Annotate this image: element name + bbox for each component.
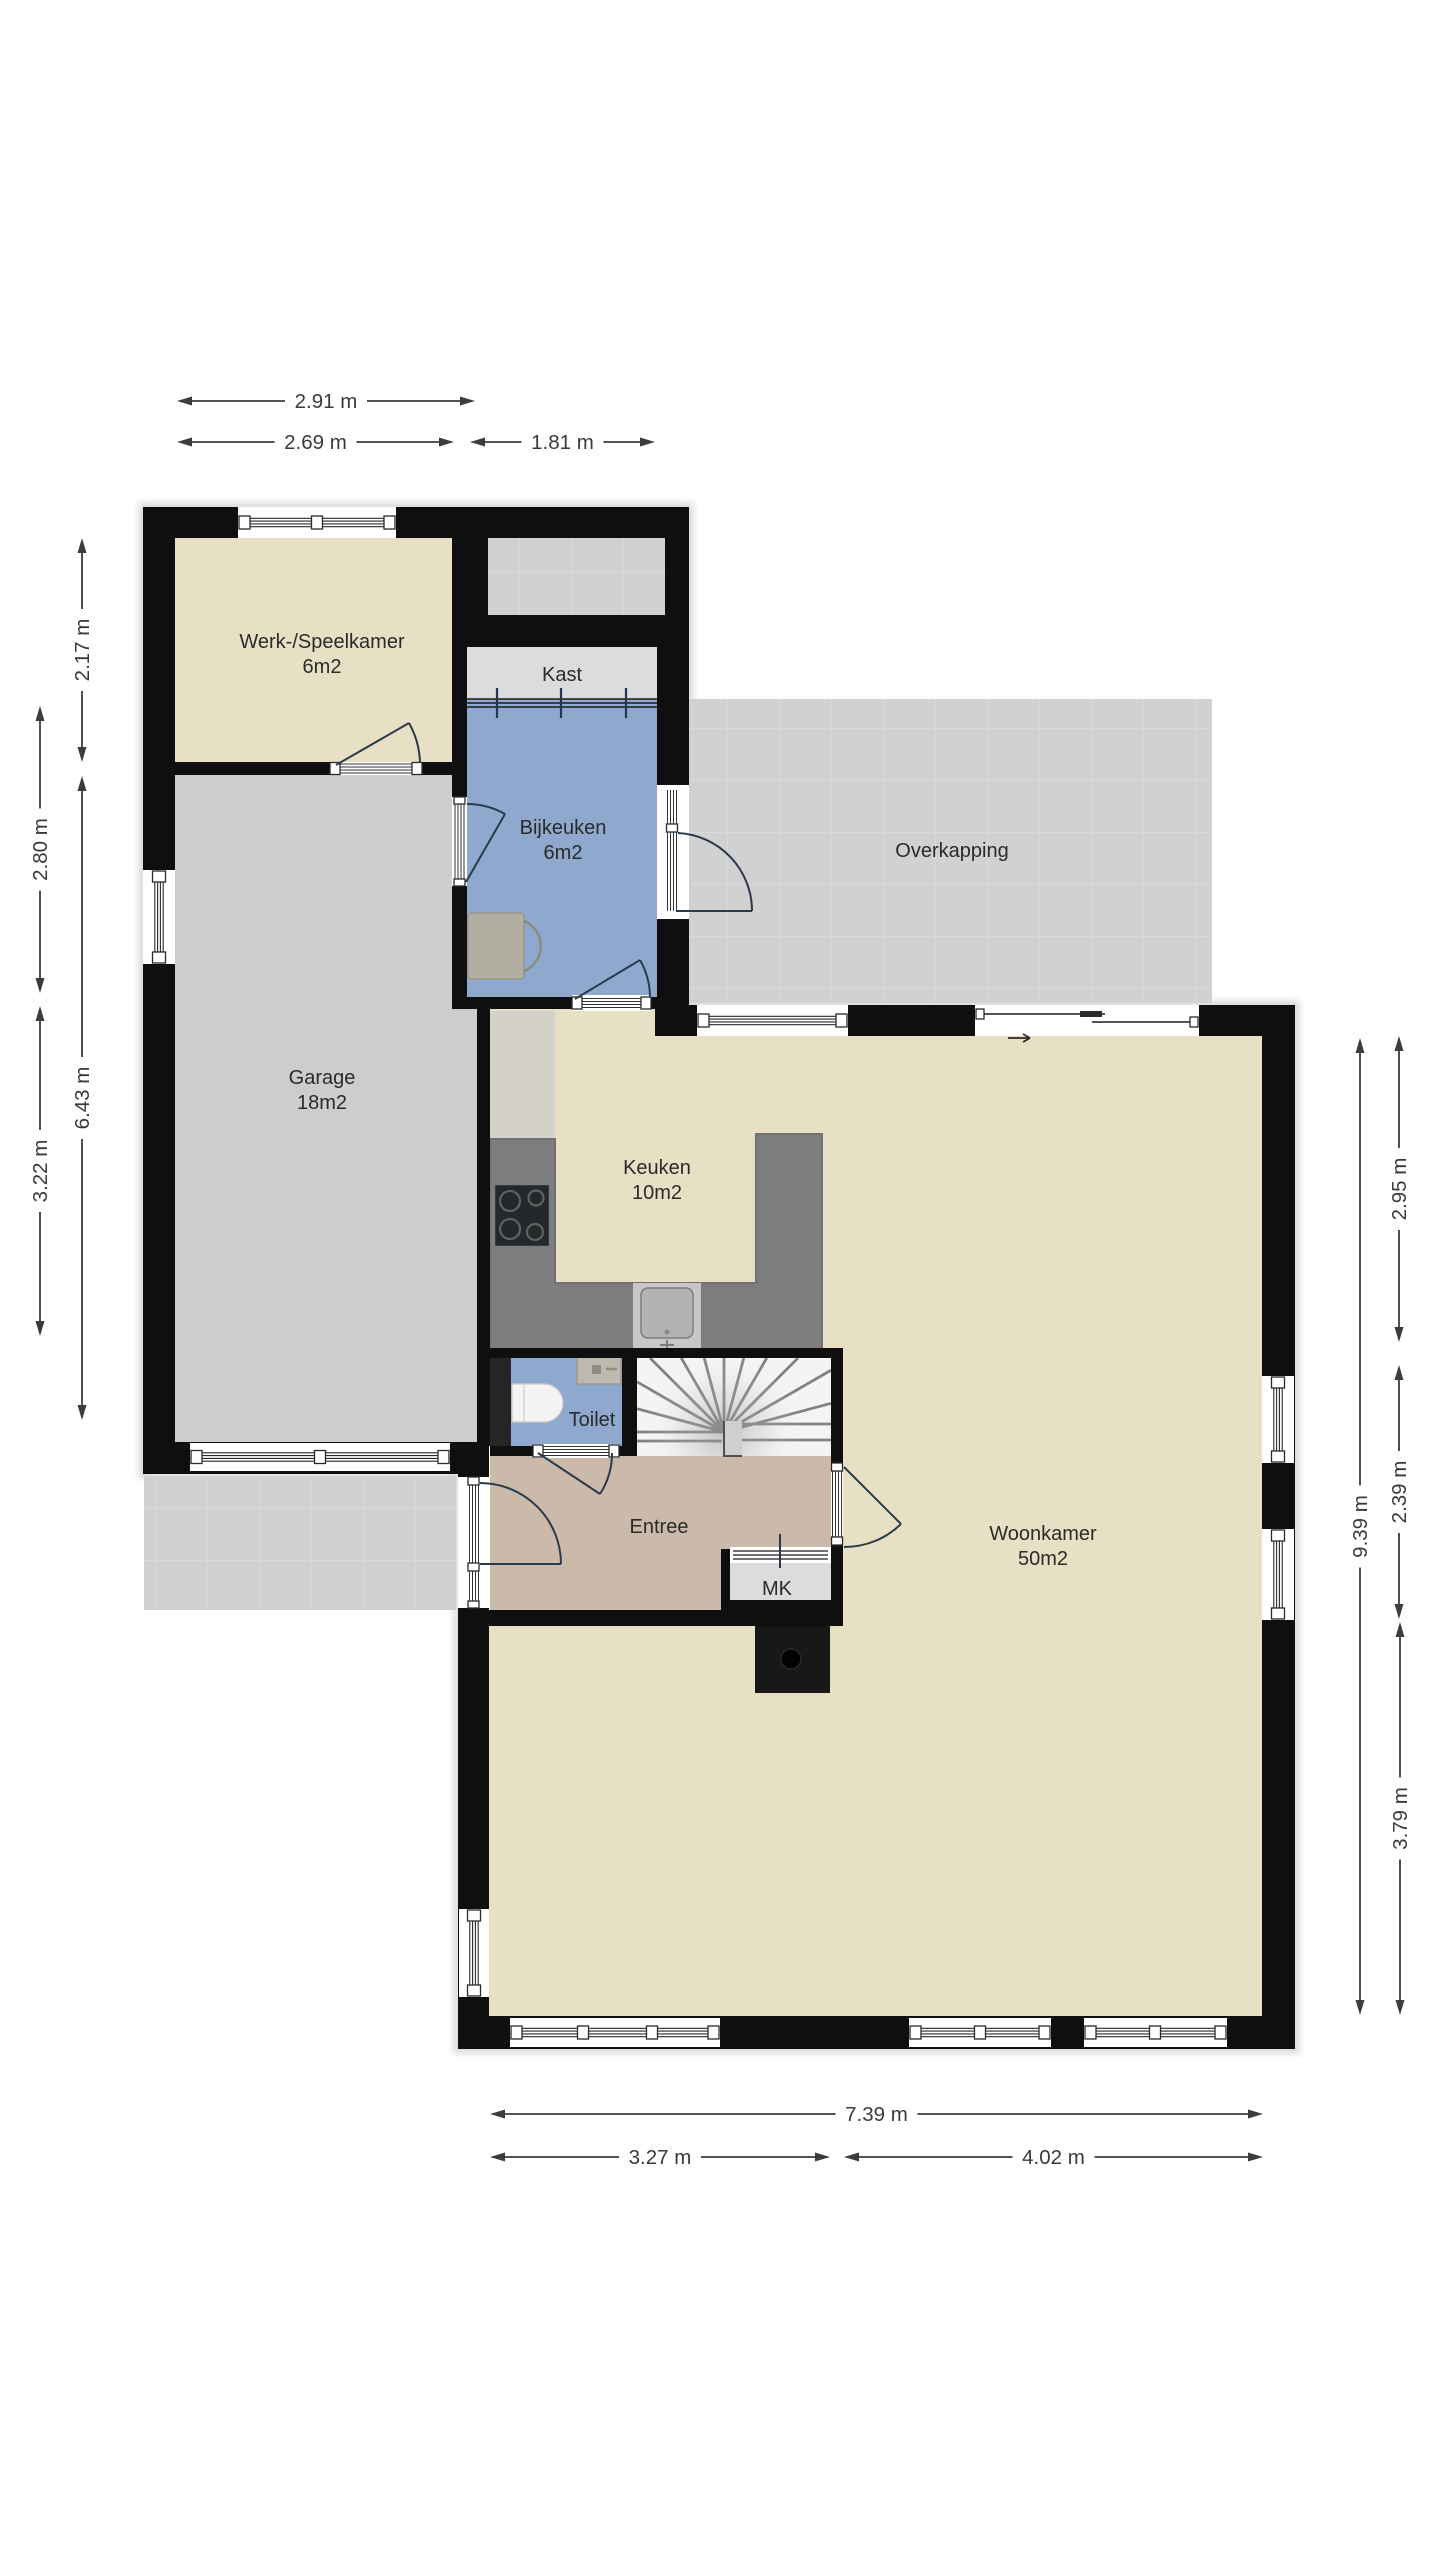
svg-text:9.39 m: 9.39 m	[1349, 1495, 1372, 1558]
svg-text:Garage: Garage	[289, 1067, 356, 1089]
svg-text:6m2: 6m2	[544, 842, 583, 864]
svg-text:MK: MK	[762, 1578, 793, 1600]
svg-text:6.43 m: 6.43 m	[71, 1067, 94, 1130]
svg-text:Werk-/Speelkamer: Werk-/Speelkamer	[239, 631, 405, 653]
svg-text:Kast: Kast	[542, 664, 582, 686]
svg-text:Toilet: Toilet	[569, 1409, 616, 1431]
svg-text:1.81 m: 1.81 m	[531, 431, 594, 454]
svg-text:10m2: 10m2	[632, 1182, 682, 1204]
svg-text:Overkapping: Overkapping	[895, 840, 1008, 862]
svg-text:3.22 m: 3.22 m	[29, 1140, 52, 1203]
svg-text:2.17 m: 2.17 m	[71, 619, 94, 682]
svg-text:Bijkeuken: Bijkeuken	[520, 817, 607, 839]
svg-text:Woonkamer: Woonkamer	[989, 1523, 1097, 1545]
svg-text:2.80 m: 2.80 m	[29, 818, 52, 881]
svg-text:2.91 m: 2.91 m	[295, 390, 358, 413]
svg-text:2.39 m: 2.39 m	[1388, 1461, 1411, 1524]
svg-text:3.79 m: 3.79 m	[1389, 1787, 1412, 1850]
svg-text:2.69 m: 2.69 m	[284, 431, 347, 454]
svg-text:Entree: Entree	[630, 1516, 689, 1538]
svg-text:Keuken: Keuken	[623, 1157, 691, 1179]
svg-text:18m2: 18m2	[297, 1092, 347, 1114]
svg-text:4.02 m: 4.02 m	[1022, 2146, 1085, 2169]
svg-text:6m2: 6m2	[303, 656, 342, 678]
svg-text:7.39 m: 7.39 m	[845, 2103, 908, 2126]
svg-text:2.95 m: 2.95 m	[1388, 1158, 1411, 1221]
svg-text:3.27 m: 3.27 m	[629, 2146, 692, 2169]
svg-text:50m2: 50m2	[1018, 1548, 1068, 1570]
